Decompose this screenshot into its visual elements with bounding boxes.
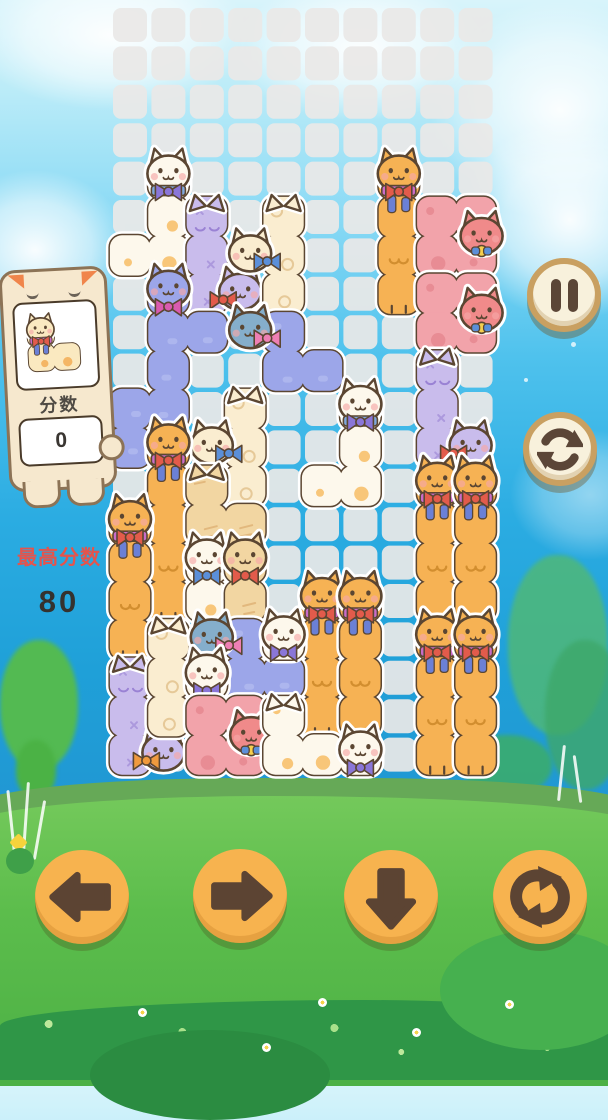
flower <box>138 1008 147 1017</box>
restart-icon <box>537 426 583 472</box>
flower <box>318 998 327 1007</box>
panel-eye-icon <box>26 290 38 300</box>
panel-paw-icon <box>66 478 105 507</box>
move-right-button[interactable] <box>193 849 287 943</box>
panel-paw-icon <box>22 480 61 509</box>
panel-eye-icon <box>68 288 80 298</box>
restart-button[interactable] <box>523 412 597 486</box>
score-value: 0 <box>18 415 104 467</box>
panel-ear-right-icon <box>81 271 98 286</box>
score-panel: 分数 0 <box>0 265 118 492</box>
panel-ear-left-icon <box>8 275 25 290</box>
arrow-left-icon <box>46 867 118 927</box>
arrow-right-icon <box>204 866 276 926</box>
next-piece-figure <box>14 301 93 384</box>
next-piece-preview <box>12 299 100 391</box>
move-down-button[interactable] <box>344 850 438 944</box>
best-score-value: 80 <box>0 584 118 620</box>
best-score-block: 最高分数 80 <box>0 541 118 620</box>
flower <box>412 1028 421 1037</box>
rotate-icon <box>506 863 574 931</box>
flower <box>262 1043 271 1052</box>
bush <box>6 848 34 874</box>
flower <box>505 1000 514 1009</box>
bush <box>90 1030 330 1120</box>
best-score-label: 最高分数 <box>0 541 118 570</box>
move-left-button[interactable] <box>35 850 129 944</box>
arrow-down-icon <box>361 861 421 933</box>
pause-button[interactable] <box>527 258 601 332</box>
rotate-button[interactable] <box>493 850 587 944</box>
pause-icon <box>542 273 586 317</box>
